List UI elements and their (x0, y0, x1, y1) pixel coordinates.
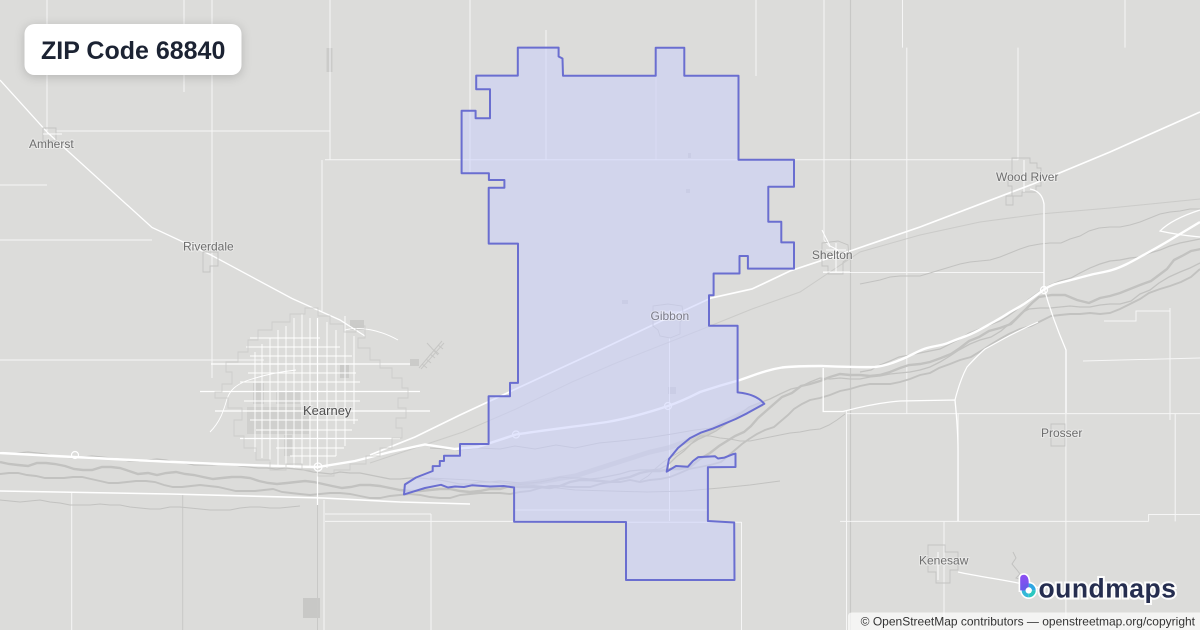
svg-text:Amherst: Amherst (29, 137, 74, 151)
svg-text:Kenesaw: Kenesaw (919, 554, 969, 568)
svg-text:Riverdale: Riverdale (183, 240, 234, 254)
svg-text:oundmaps: oundmaps (1039, 574, 1177, 604)
svg-text:Wood River: Wood River (996, 170, 1058, 184)
svg-text:Kearney: Kearney (303, 403, 352, 418)
svg-text:ZIP Code 68840: ZIP Code 68840 (41, 37, 225, 65)
svg-text:© OpenStreetMap contributors —: © OpenStreetMap contributors — openstree… (861, 615, 1196, 629)
svg-text:Prosser: Prosser (1041, 426, 1082, 440)
svg-text:Gibbon: Gibbon (651, 309, 690, 323)
svg-text:Shelton: Shelton (812, 248, 853, 262)
